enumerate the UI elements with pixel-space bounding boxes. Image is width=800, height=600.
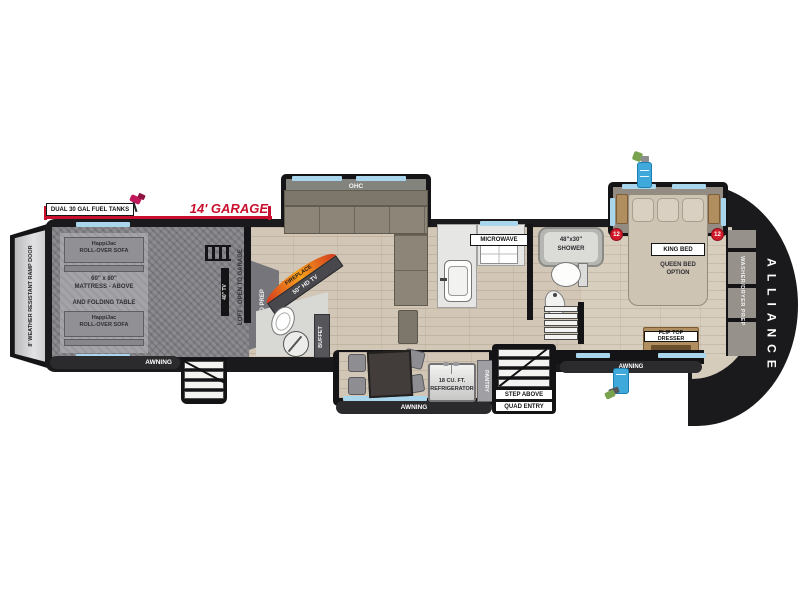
dinette-chair-1 — [348, 354, 366, 372]
kitchen-sink-faucet — [440, 278, 447, 281]
nightstand-left — [616, 194, 628, 224]
garage-sofa-bottom-label-line1: HappiJac — [64, 315, 144, 321]
bedroom-slide-window-top-right — [672, 184, 706, 189]
kitchen-window — [480, 221, 518, 226]
bedroom-stairs — [544, 306, 578, 342]
dinette-table — [367, 350, 413, 398]
bedroom-slide-window-side-right — [721, 198, 726, 226]
stove-cooktop — [480, 244, 518, 264]
garage-entry-steps — [181, 358, 227, 404]
garage-dimension-tick-right — [268, 206, 271, 220]
bed-pillow-2 — [657, 198, 679, 222]
marker-12-left: 12 — [610, 228, 623, 241]
awning-bar-left: AWNING — [50, 356, 180, 369]
shower-label-line1: 48"x30" — [542, 237, 600, 244]
garage-length-label: 14' GARAGE — [188, 202, 268, 216]
quad-entry-label-line1: STEP ABOVE — [495, 389, 553, 400]
garage-sofa-bottom-rail — [64, 339, 144, 346]
kitchen-sink-basin — [448, 266, 468, 296]
garage-sofa-top-label-line1: HappiJac — [64, 241, 144, 247]
refrigerator-label-line2: REFRIGERATOR — [429, 386, 475, 392]
washer-dryer-prep-label: WASHER/DRYER PREP — [736, 236, 746, 346]
refrigerator-door-split — [451, 364, 452, 374]
mattress-label-line2: MATTRESS - ABOVE — [56, 284, 152, 291]
sectional-sofa-back — [284, 190, 428, 206]
loft-ladder-icon — [205, 245, 231, 261]
sectional-sofa-seats — [284, 206, 428, 234]
queen-option-label-line2: OPTION — [644, 270, 712, 277]
folding-table-label: AND FOLDING TABLE — [56, 300, 152, 307]
bath-toilet — [551, 262, 581, 287]
outdoor-shower-icon — [605, 368, 635, 400]
brand-alliance-label: ALLIANCE — [766, 232, 779, 402]
dinette-chair-2 — [348, 377, 366, 395]
queen-option-label-line1: QUEEN BED — [644, 262, 712, 269]
sofa-slide-window-right — [356, 176, 406, 181]
tankless-water-heater-icon — [632, 151, 656, 189]
floorplan: 8' WEATHER RESISTANT RAMP DOOR 14' GARAG… — [0, 0, 800, 600]
bedroom-stairs-wall — [578, 302, 584, 344]
pantry-label: PANTRY — [480, 362, 490, 400]
garage-tv-label: 40" TV — [220, 272, 230, 312]
refrigerator-handle-right — [453, 362, 459, 366]
garage-sofa-top-rail — [64, 265, 144, 272]
bedroom-bottom-window-left — [576, 353, 610, 358]
bed-pillow-1 — [632, 198, 654, 222]
garage-sofa-bottom-label-line2: ROLL-OVER SOFA — [64, 322, 144, 328]
nightstand-right — [708, 194, 720, 224]
sectional-sofa-chaise — [394, 234, 428, 306]
refrigerator-label-line1: 18 CU. FT. — [429, 378, 475, 384]
garage-top-window — [76, 222, 130, 227]
garage-dimension-line — [45, 216, 272, 219]
ramp-door-label: 8' WEATHER RESISTANT RAMP DOOR — [26, 232, 36, 360]
sofa-slide-window-left — [292, 176, 342, 181]
garage-sofa-top-label-line2: ROLL-OVER SOFA — [64, 248, 144, 254]
marker-12-right: 12 — [711, 228, 724, 241]
shower-label-line2: SHOWER — [542, 246, 600, 253]
bath-sink-faucet — [553, 293, 557, 297]
flip-top-dresser-label: FLIP TOP DRESSER — [644, 331, 698, 342]
fuel-pump-icon — [128, 193, 150, 213]
awning-bar-center: AWNING — [336, 401, 492, 414]
quad-entry-steps — [498, 349, 550, 387]
fuel-tanks-label: DUAL 30 GAL FUEL TANKS — [46, 203, 134, 216]
king-bed-label: KING BED — [651, 243, 705, 256]
bedroom-slide-window-side-left — [610, 198, 615, 226]
quad-entry-label-line2: QUAD ENTRY — [495, 401, 553, 412]
buffet-label: BUFFET — [317, 317, 327, 357]
mattress-label-line1: 60" x 80" — [56, 276, 152, 283]
garage-living-wall — [244, 227, 251, 323]
microwave-label: MICROWAVE — [470, 234, 528, 246]
bath-wall-left — [527, 224, 533, 320]
bedroom-bottom-window-right — [658, 353, 706, 358]
ottoman — [398, 310, 418, 344]
bed-pillow-3 — [682, 198, 704, 222]
refrigerator-handle-left — [443, 362, 449, 366]
